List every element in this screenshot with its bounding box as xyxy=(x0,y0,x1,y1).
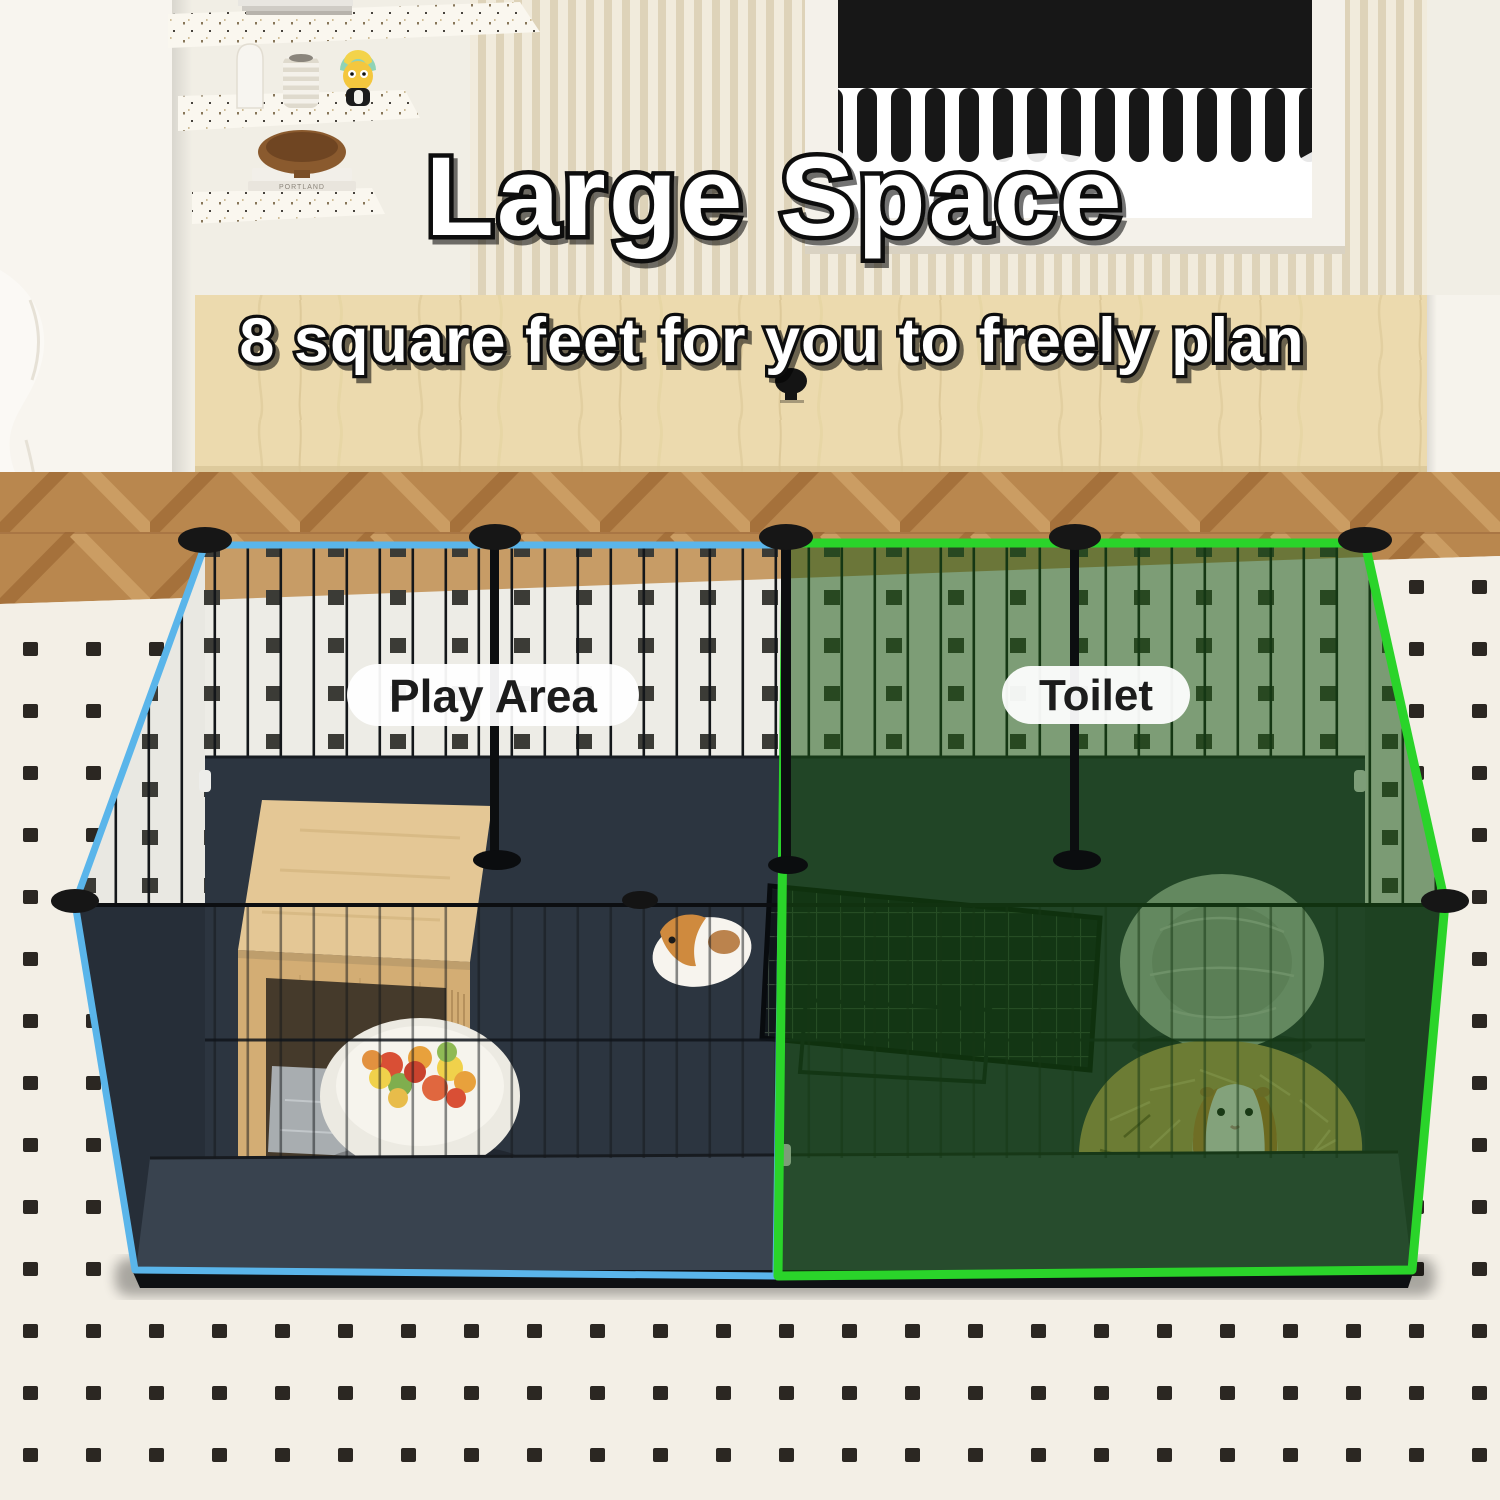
corner-cap xyxy=(1421,889,1469,913)
scene: PORTLAND xyxy=(0,0,1500,1500)
shelf-side-panel xyxy=(0,0,172,472)
corner-cap xyxy=(1049,524,1101,550)
corner-cap xyxy=(1338,527,1392,553)
book-spine-label: PORTLAND xyxy=(279,184,325,191)
playpen: Play Area Toilet xyxy=(51,524,1469,1296)
white-vase xyxy=(237,44,263,108)
page-subtitle: 8 square feet for you to freely plan xyxy=(239,306,1304,376)
toilet-label: Toilet xyxy=(1039,671,1153,720)
toilet-label-pill: Toilet xyxy=(1002,666,1190,724)
corner-cap xyxy=(469,524,521,550)
book-stack xyxy=(238,0,353,15)
toilet-tint-overlay xyxy=(777,545,1445,1276)
corner-cap xyxy=(51,889,99,913)
ribbed-vase xyxy=(283,54,319,108)
corner-cap xyxy=(622,891,658,909)
page-title: Large Space xyxy=(425,134,1124,259)
corner-cap xyxy=(178,527,232,553)
play-area-label: Play Area xyxy=(389,670,597,722)
product-image: PORTLAND xyxy=(0,0,1500,1500)
play-area-label-pill: Play Area xyxy=(347,664,639,726)
corner-cap xyxy=(759,524,813,550)
